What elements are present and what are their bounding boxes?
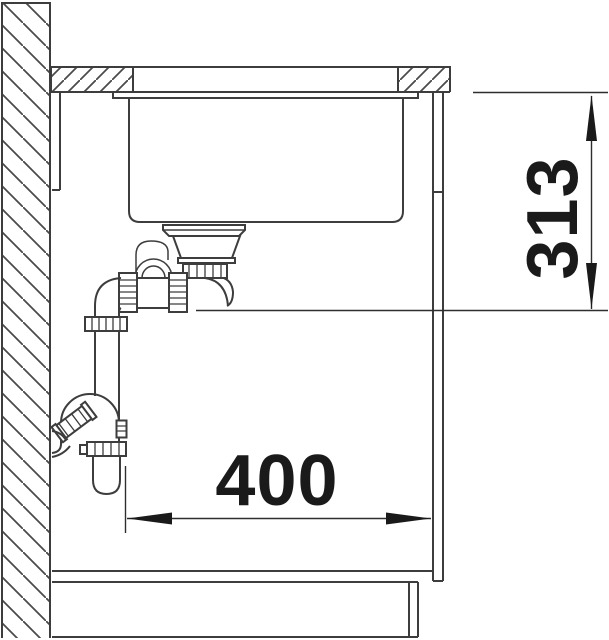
trap-left-nut [119, 273, 137, 312]
cabinet-bottom-shelf [52, 571, 433, 582]
trap-dome [135, 259, 172, 278]
countertop-section [51, 67, 450, 93]
left-elbow [95, 278, 121, 318]
undermount-sink [113, 92, 418, 263]
bend-stub [117, 421, 127, 438]
height-dimension-label: 313 [517, 156, 589, 279]
wall-outlet-nut [52, 402, 97, 442]
diagram-canvas [0, 0, 609, 640]
trap-cup-nut [80, 442, 126, 456]
trap-cup [93, 456, 120, 494]
cabinet-carcass [52, 93, 443, 637]
arrow-up-icon [586, 95, 597, 141]
arrow-right-icon [386, 513, 431, 525]
downpipe-nut [85, 317, 127, 331]
trap-right-nut [169, 273, 187, 312]
cabinet-side-panel [433, 93, 443, 581]
outlet-elbow [205, 277, 233, 306]
sink-installation-diagram: 313 400 [0, 0, 609, 640]
strainer-nut [183, 264, 227, 278]
space-saver-siphon-trap [52, 241, 233, 494]
cabinet-back-rail [52, 93, 60, 190]
arrow-left-icon [127, 513, 172, 525]
sink-bowl [129, 98, 403, 222]
wall-section [2, 3, 50, 638]
plinth-panel [409, 582, 418, 637]
width-dimension-label: 400 [215, 445, 338, 517]
strainer-drain [163, 225, 245, 263]
